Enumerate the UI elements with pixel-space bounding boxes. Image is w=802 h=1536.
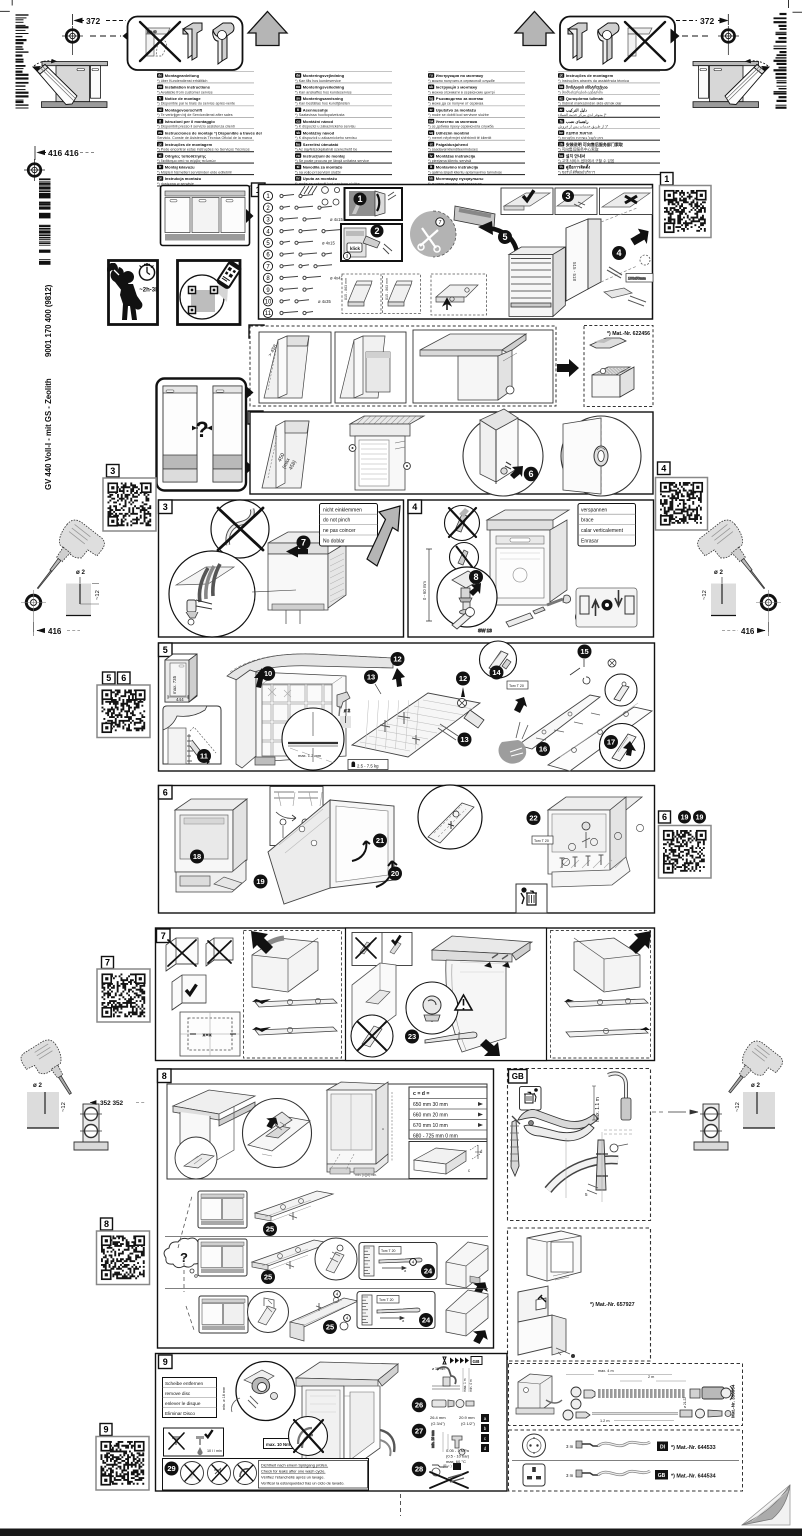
svg-text:Verificar la estanqueidad tras: Verificar la estanqueidad tras un ciclo … xyxy=(261,1481,344,1486)
svg-text:GB: GB xyxy=(473,1359,481,1364)
svg-text:(R = ): (R = ) xyxy=(443,1464,452,1468)
svg-text:2: 2 xyxy=(374,226,379,236)
svg-text:min. ø 18 mm: min. ø 18 mm xyxy=(222,1387,226,1410)
svg-text:GB: GB xyxy=(512,1072,524,1081)
svg-text:ru: ru xyxy=(429,74,432,78)
svg-text:*) Instruções através da assis: *) Instruções através da assistência téc… xyxy=(558,79,630,83)
svg-text:Udhëzim montimi: Udhëzim montimi xyxy=(436,130,469,135)
svg-text:22: 22 xyxy=(529,814,537,823)
svg-text:az: az xyxy=(559,97,563,101)
svg-text:*) merret nëpërmjet shërbimit: *) merret nëpërmjet shërbimit të klienti… xyxy=(428,136,491,140)
svg-text:*) Saatavissa huoltopalvelusta: *) Saatavissa huoltopalvelusta xyxy=(295,113,345,117)
svg-text:8: 8 xyxy=(162,1071,167,1081)
svg-text:*) Mat.-Nr. 644533: *) Mat.-Nr. 644533 xyxy=(671,1445,716,1451)
svg-text:*) διαθέσιμο από το σέρβις πελ: *) διαθέσιμο από το σέρβις πελατών xyxy=(157,159,216,163)
svg-text:remove disc: remove disc xyxy=(165,1391,191,1396)
svg-text:815 - 863 mm: 815 - 863 mm xyxy=(385,278,389,300)
svg-text:20.9 mm: 20.9 mm xyxy=(459,1415,475,1420)
svg-text:14: 14 xyxy=(492,668,501,677)
svg-text:ø 2: ø 2 xyxy=(344,708,351,713)
svg-text:ko: ko xyxy=(559,154,563,158)
svg-text:29: 29 xyxy=(167,1464,175,1473)
svg-text:*) pieejama klientu servisā: *) pieejama klientu servisā xyxy=(428,159,472,163)
svg-text:?: ? xyxy=(195,417,208,442)
svg-text:Montāžas instrukcija: Montāžas instrukcija xyxy=(436,153,476,158)
svg-text:Dichtheit nach einem Spülgang: Dichtheit nach einem Spülgang prüfen. xyxy=(261,1463,328,1468)
svg-text:enlever le disque: enlever le disque xyxy=(165,1401,201,1406)
svg-text:25: 25 xyxy=(326,1323,334,1332)
svg-text:24: 24 xyxy=(422,1316,431,1325)
svg-text:ø 2: ø 2 xyxy=(76,569,85,576)
svg-text:el: el xyxy=(159,154,162,158)
svg-text:9: 9 xyxy=(163,1357,168,1367)
svg-text:6: 6 xyxy=(662,812,667,822)
svg-text:Montavimo instrukcija: Montavimo instrukcija xyxy=(436,165,479,170)
svg-text:Instruções de montagem: Instruções de montagem xyxy=(566,73,614,78)
svg-text:(0.5 - 10 bar): (0.5 - 10 bar) xyxy=(446,1454,470,1459)
svg-text:*) Xidmət mərkəzindən əldə etm: *) Xidmət mərkəzindən əldə etmək olar xyxy=(558,102,622,106)
svg-text:8: 8 xyxy=(104,1219,109,1229)
svg-text:verspannen: verspannen xyxy=(581,508,607,514)
svg-text:Torx T 20: Torx T 20 xyxy=(534,839,549,843)
svg-text:9: 9 xyxy=(103,1425,108,1435)
svg-text:Vérifiez l’étanchéité après un: Vérifiez l’étanchéité après un lavage. xyxy=(261,1475,325,1480)
svg-text:ø 2: ø 2 xyxy=(714,569,723,576)
svg-text:Instrukcja montażu: Instrukcja montażu xyxy=(165,176,202,181)
svg-text:23: 23 xyxy=(408,1032,416,1041)
svg-text:Szerelési útmutató: Szerelési útmutató xyxy=(303,142,339,147)
svg-text:ø 4x35: ø 4x35 xyxy=(318,299,331,304)
svg-text:5: 5 xyxy=(502,232,507,242)
svg-text:*) 고객 서비스 센터에서 구할 수 있음: *) 고객 서비스 센터에서 구할 수 있음 xyxy=(558,158,615,163)
svg-text:Servicio. Conste de Asistencia: Servicio. Conste de Asistencia Técnica O… xyxy=(157,136,253,140)
svg-text:3 m: 3 m xyxy=(566,1473,574,1478)
svg-text:21: 21 xyxy=(376,836,384,845)
svg-text:Montážny návod: Montážny návod xyxy=(303,130,335,135)
svg-text:sq: sq xyxy=(429,131,433,135)
svg-text:Istruzioni per il montaggio: Istruzioni per il montaggio xyxy=(165,119,216,124)
svg-text:Eliminar Disco: Eliminar Disco xyxy=(165,1411,195,1416)
svg-text:설치 안내서: 설치 안내서 xyxy=(566,152,586,158)
svg-text:27: 27 xyxy=(415,1427,423,1436)
svg-text:sk: sk xyxy=(296,131,300,135)
svg-text:Монтаждау нұсқаулығы: Монтаждау нұсқаулығы xyxy=(436,176,484,181)
svg-text:en: en xyxy=(158,85,162,89)
svg-text:nicht einklemmen: nicht einklemmen xyxy=(323,508,362,514)
svg-text:3 m: 3 m xyxy=(566,1444,574,1449)
svg-text:ø 4x42: ø 4x42 xyxy=(330,275,343,280)
svg-text:c: c xyxy=(380,1128,385,1130)
svg-text:sv: sv xyxy=(296,97,300,101)
svg-text:Instrucţiuni de montaj: Instrucţiuni de montaj xyxy=(303,153,345,158)
svg-text:*) може да се получи от сервиз: *) може да се получи от сервиза xyxy=(428,102,484,106)
svg-text:7: 7 xyxy=(301,538,306,548)
svg-text:de: de xyxy=(158,74,162,78)
svg-text:416: 416 xyxy=(741,627,755,636)
svg-text:pl: pl xyxy=(159,177,162,181)
svg-text:*) Mat.-Nr. 657927: *) Mat.-Nr. 657927 xyxy=(590,1302,635,1308)
svg-text:‫*( متوفر لدى مركز خدمة العملا: ‫*( متوفر لدى مركز خدمة العملاء‬ xyxy=(558,112,607,117)
svg-text:1: 1 xyxy=(357,194,362,204)
svg-text:*) се добива преку сервисната: *) се добива преку сервисната служба xyxy=(428,125,495,129)
svg-text:~12: ~12 xyxy=(702,590,708,600)
svg-text:0.05 - 1 MPa: 0.05 - 1 MPa xyxy=(446,1448,470,1453)
svg-text:0 - 60 mm: 0 - 60 mm xyxy=(422,581,427,600)
svg-text:*) 可向售后服务中心索取: *) 可向售后服务中心索取 xyxy=(558,147,599,152)
svg-text:*) može se dobiti kod servisne: *) može se dobiti kod servisne službe xyxy=(428,113,489,117)
svg-text:*) ขอรับได้ที่ศูนย์บริการ: *) ขอรับได้ที่ศูนย์บริการ xyxy=(558,169,595,174)
svg-text:*) K dispozici u zákaznického: *) K dispozici u zákaznického servisu xyxy=(295,125,355,129)
svg-text:372: 372 xyxy=(700,16,714,26)
svg-text:Montagevoorschrift: Montagevoorschrift xyxy=(165,107,203,112)
svg-text:100x50mm: 100x50mm xyxy=(628,277,646,281)
svg-text:Torx T 20: Torx T 20 xyxy=(381,1249,396,1253)
svg-text:es: es xyxy=(158,131,162,135)
svg-text:no: no xyxy=(296,85,300,89)
svg-text:ø 21-22: ø 21-22 xyxy=(683,1397,687,1408)
svg-text:zh: zh xyxy=(559,142,563,146)
svg-text:Installation instructions: Installation instructions xyxy=(165,85,211,90)
svg-text:Montaj kılavuzu: Montaj kılavuzu xyxy=(165,165,195,170)
svg-text:brace: brace xyxy=(581,518,594,524)
svg-text:Enrasar: Enrasar xyxy=(581,539,599,545)
svg-text:*) Kan beställas hos kundtjäns: *) Kan beställas hos kundtjänsten xyxy=(295,102,350,106)
svg-text:19: 19 xyxy=(681,815,689,822)
svg-text:*) Se poate procura pe lângă u: *) Se poate procura pe lângă unitatea se… xyxy=(295,159,369,163)
svg-text:20: 20 xyxy=(391,869,399,878)
svg-text:Scheibe entfernen: Scheibe entfernen xyxy=(165,1381,203,1386)
svg-text:3: 3 xyxy=(565,191,570,201)
svg-text:Montážní návod: Montážní návod xyxy=(303,119,334,124)
svg-text:Torx T 20: Torx T 20 xyxy=(379,1298,394,1302)
svg-text:klick: klick xyxy=(350,246,361,251)
svg-text:4: 4 xyxy=(616,248,621,258)
svg-text:16: 16 xyxy=(539,745,547,754)
svg-text:444: 444 xyxy=(176,697,184,702)
svg-text:Navodila za montažo: Navodila za montažo xyxy=(303,165,343,170)
svg-text:7: 7 xyxy=(161,931,166,941)
svg-text:670 mm 10 mm: 670 mm 10 mm xyxy=(413,1123,448,1129)
svg-text:*) Mat.-Nr. 622456: *) Mat.-Nr. 622456 xyxy=(607,331,650,337)
svg-text:25: 25 xyxy=(266,1225,274,1234)
svg-text:sl: sl xyxy=(297,165,300,169)
svg-text:3: 3 xyxy=(163,502,168,512)
svg-text:*) na voljo pri servisni služb: *) na voljo pri servisni službi xyxy=(295,170,341,174)
svg-text:SW 13: SW 13 xyxy=(478,628,492,633)
svg-text:Instrucciones de montaje *): Instrucciones de montaje *) Disponible a… xyxy=(165,130,262,135)
svg-text:4: 4 xyxy=(661,463,666,473)
svg-text:ø 38 mm: ø 38 mm xyxy=(432,1367,446,1371)
svg-text:Check for leaks after one wash: Check for leaks after one wash cycle. xyxy=(261,1469,325,1474)
svg-text:Notice de montage: Notice de montage xyxy=(165,96,202,101)
svg-text:max. 10 Nm: max. 10 Nm xyxy=(266,1442,290,1447)
svg-text:*) можна отримати в сервісному: *) можна отримати в сервісному центрі xyxy=(428,90,495,94)
svg-text:*) Müşteri hizmetleri servisin: *) Müşteri hizmetleri servisinden elde e… xyxy=(157,170,233,174)
svg-text:7: 7 xyxy=(105,958,110,968)
svg-text:ro: ro xyxy=(296,154,299,158)
svg-text:~12: ~12 xyxy=(61,1102,67,1112)
svg-text:Monteringsvejledning: Monteringsvejledning xyxy=(303,73,345,78)
svg-text:nl: nl xyxy=(159,108,162,112)
svg-text:5: 5 xyxy=(163,645,168,655)
svg-text:Mat.-Nr. 350564: Mat.-Nr. 350564 xyxy=(731,1384,736,1418)
svg-text:6: 6 xyxy=(121,673,126,683)
svg-text:Uputstvo za montažu: Uputstvo za montažu xyxy=(436,107,477,112)
svg-text:min. [c][d] min.: min. [c][d] min. xyxy=(355,1173,377,1177)
svg-text:*) можно получить в сервисной: *) можно получить в сервисной службе xyxy=(428,79,495,83)
svg-text:fa: fa xyxy=(560,119,563,123)
svg-text:*) Te verkrijgen bij de Servic: *) Te verkrijgen bij de Servicedienst af… xyxy=(157,113,233,117)
svg-text:Asennusohje: Asennusohje xyxy=(303,107,329,112)
svg-text:12: 12 xyxy=(459,674,467,683)
svg-text:fi: fi xyxy=(297,108,299,112)
svg-text:416 416: 416 416 xyxy=(48,148,79,158)
svg-text:*) Az ügyfélszolgálatnál szere: *) Az ügyfélszolgálatnál szerezhető be xyxy=(295,148,357,152)
svg-text:372: 372 xyxy=(86,16,100,26)
svg-text:min. 10 mm: min. 10 mm xyxy=(431,1430,435,1448)
svg-text:min. 4 m: min. 4 m xyxy=(469,1379,473,1392)
svg-text:Monteringsanvisning: Monteringsanvisning xyxy=(303,96,344,101)
svg-text:ø 2: ø 2 xyxy=(751,1082,760,1089)
svg-text:13: 13 xyxy=(460,735,468,744)
svg-text:650 mm 30 mm: 650 mm 30 mm xyxy=(413,1102,448,1108)
svg-text:3: 3 xyxy=(110,466,115,476)
svg-text:calar verticalement: calar verticalement xyxy=(581,528,624,534)
svg-text:11: 11 xyxy=(265,311,272,317)
svg-text:17: 17 xyxy=(607,738,615,747)
svg-text:*) saadaval klienditeeninduses: *) saadaval klienditeeninduses xyxy=(428,148,478,152)
svg-text:Упатство за монтажа: Упатство за монтажа xyxy=(436,119,478,124)
svg-text:*) ניתן לקבל בשירות הלקוחות: *) ניתן לקבל בשירות הלקוחות xyxy=(558,136,604,140)
svg-text:*) მომსახურების ცენტრში: *) მომსახურების ცენტრში xyxy=(558,89,603,94)
svg-text:bg: bg xyxy=(429,97,433,101)
svg-text:*) Kan fås hos kundeservice: *) Kan fås hos kundeservice xyxy=(295,79,341,83)
svg-text:‫*( از طریق خدمات پس از فروش‬: ‫*( از طریق خدمات پس از فروش‬ xyxy=(558,124,609,129)
svg-text:660 mm 20 mm: 660 mm 20 mm xyxy=(413,1113,448,1119)
svg-text:26.4 mm: 26.4 mm xyxy=(430,1415,446,1420)
svg-text:3: 3 xyxy=(346,254,349,259)
svg-text:Інструкція з монтажу: Інструкція з монтажу xyxy=(436,85,478,90)
svg-text:he: he xyxy=(559,131,563,135)
svg-text:Instruções de montagem: Instruções de montagem xyxy=(165,142,213,147)
svg-text:Quraşdırma təlimatı: Quraşdırma təlimatı xyxy=(566,96,604,101)
svg-text:10: 10 xyxy=(265,299,272,305)
svg-text:kk: kk xyxy=(429,177,433,181)
svg-text:uk: uk xyxy=(429,85,433,89)
svg-text:6: 6 xyxy=(163,787,168,797)
svg-text:安装说明 可向售后服务部门索取: 安装说明 可向售后服务部门索取 xyxy=(566,141,623,147)
svg-text:mk: mk xyxy=(429,119,434,123)
svg-text:~2h-3h: ~2h-3h xyxy=(139,288,159,294)
svg-text:~12: ~12 xyxy=(95,590,101,600)
svg-text:*) Disponible par le biais du: *) Disponible par le biais du service ap… xyxy=(157,102,235,106)
svg-text:1: 1 xyxy=(664,174,669,184)
svg-text:DI: DI xyxy=(660,1445,666,1451)
svg-text:2 m: 2 m xyxy=(648,1375,654,1379)
svg-text:GB: GB xyxy=(658,1473,666,1479)
svg-text:24: 24 xyxy=(424,1267,433,1276)
svg-text:680 - 725 mm 0 mm: 680 - 725 mm 0 mm xyxy=(413,1134,458,1140)
svg-text:c = d =: c = d = xyxy=(413,1091,429,1097)
svg-text:*) über Kundendienst erhältlic: *) über Kundendienst erhältlich xyxy=(157,79,207,83)
svg-text:Montageanleitung: Montageanleitung xyxy=(165,73,200,78)
svg-text:*) Available from customer ser: *) Available from customer service xyxy=(157,90,213,94)
svg-text:515 - 518: 515 - 518 xyxy=(572,262,577,282)
svg-text:do not pinch: do not pinch xyxy=(323,518,350,524)
svg-text:8: 8 xyxy=(473,572,478,582)
svg-text:*) Disponibili presso il servi: *) Disponibili presso il servizio assist… xyxy=(157,125,235,129)
svg-text:*) K dispozícii u zákazníckeho: *) K dispozícii u zákazníckeho servisu xyxy=(295,136,357,140)
svg-text:25: 25 xyxy=(264,1273,272,1282)
svg-text:Инструкция по монтажу: Инструкция по монтажу xyxy=(436,73,484,78)
svg-text:ø 4x15: ø 4x15 xyxy=(330,217,343,222)
svg-text:10 l / min: 10 l / min xyxy=(207,1449,222,1453)
svg-text:13: 13 xyxy=(367,673,375,682)
svg-text:352 352: 352 352 xyxy=(100,1100,124,1107)
svg-text:x = x: x = x xyxy=(203,1033,211,1037)
svg-text:max. 1.2 mm: max. 1.2 mm xyxy=(298,753,322,758)
svg-text:2.5 - 7.5 kg: 2.5 - 7.5 kg xyxy=(357,764,379,769)
svg-text:*) Kan anskaffes hos kundeserv: *) Kan anskaffes hos kundeservice xyxy=(295,90,352,94)
svg-text:28: 28 xyxy=(415,1465,423,1474)
svg-text:cs: cs xyxy=(296,119,300,123)
svg-text:ka: ka xyxy=(559,85,563,89)
svg-text:ø 2: ø 2 xyxy=(33,1082,42,1089)
svg-text:max. 1.1 m: max. 1.1 m xyxy=(595,1097,601,1122)
svg-text:Uputa za montažu: Uputa za montažu xyxy=(303,176,338,181)
svg-text:12: 12 xyxy=(393,655,401,664)
svg-text:Monteringsveiledning: Monteringsveiledning xyxy=(303,85,345,90)
svg-text:Torx T 20: Torx T 20 xyxy=(509,684,524,688)
svg-text:19: 19 xyxy=(696,815,704,822)
svg-text:max. 735: max. 735 xyxy=(172,675,177,694)
svg-text:*) galima įsigyti klientų apta: *) galima įsigyti klientų aptarnavimo ta… xyxy=(428,170,502,174)
svg-text:~12: ~12 xyxy=(735,1102,741,1112)
svg-text:15: 15 xyxy=(580,647,588,656)
svg-text:Οδηγίες τοποθέτησης: Οδηγίες τοποθέτησης xyxy=(165,153,206,158)
svg-text:Paigaldusjuhend: Paigaldusjuhend xyxy=(436,142,469,147)
svg-text:1.2 m: 1.2 m xyxy=(600,1419,610,1423)
svg-text:hu: hu xyxy=(296,142,300,146)
svg-text:ø 4x15: ø 4x15 xyxy=(322,240,335,245)
svg-text:815 - 863 mm: 815 - 863 mm xyxy=(344,278,348,300)
svg-text:7: 7 xyxy=(438,220,441,226)
svg-text:18: 18 xyxy=(193,852,201,861)
svg-text:th: th xyxy=(559,165,562,169)
svg-text:da: da xyxy=(296,74,300,78)
svg-text:הוראות התקנה: הוראות התקנה xyxy=(566,130,593,135)
svg-text:*) Mat.-Nr. 644534: *) Mat.-Nr. 644534 xyxy=(671,1474,716,1480)
svg-text:11: 11 xyxy=(200,752,208,761)
svg-text:416: 416 xyxy=(48,627,62,636)
svg-text:19: 19 xyxy=(256,877,264,886)
svg-text:GV 440 Voll-I - mit GS - Zeoli: GV 440 Voll-I - mit GS - Zeolith xyxy=(44,378,53,490)
svg-text:ne pas coincer: ne pas coincer xyxy=(323,528,356,534)
svg-text:lv: lv xyxy=(430,154,433,158)
svg-text:26: 26 xyxy=(415,1401,423,1410)
svg-text:*) Pode encontrar estas instru: *) Pode encontrar estas instruções no Se… xyxy=(157,148,250,152)
svg-text:(G 1/2"): (G 1/2") xyxy=(461,1421,476,1426)
svg-text:No doblar: No doblar xyxy=(323,539,345,545)
svg-text:4: 4 xyxy=(412,502,417,512)
svg-text:max. 1 m: max. 1 m xyxy=(463,1378,467,1392)
svg-text:max. 4 m: max. 4 m xyxy=(598,1369,614,1373)
svg-text:c: c xyxy=(468,1168,470,1173)
svg-text:Ръководство за монтаж: Ръководство за монтаж xyxy=(436,96,484,101)
svg-text:(G 3/4"): (G 3/4") xyxy=(431,1421,446,1426)
svg-text:5: 5 xyxy=(106,673,111,683)
svg-text:9001 170 400 (9812): 9001 170 400 (9812) xyxy=(44,284,53,357)
svg-text:6: 6 xyxy=(528,469,533,479)
